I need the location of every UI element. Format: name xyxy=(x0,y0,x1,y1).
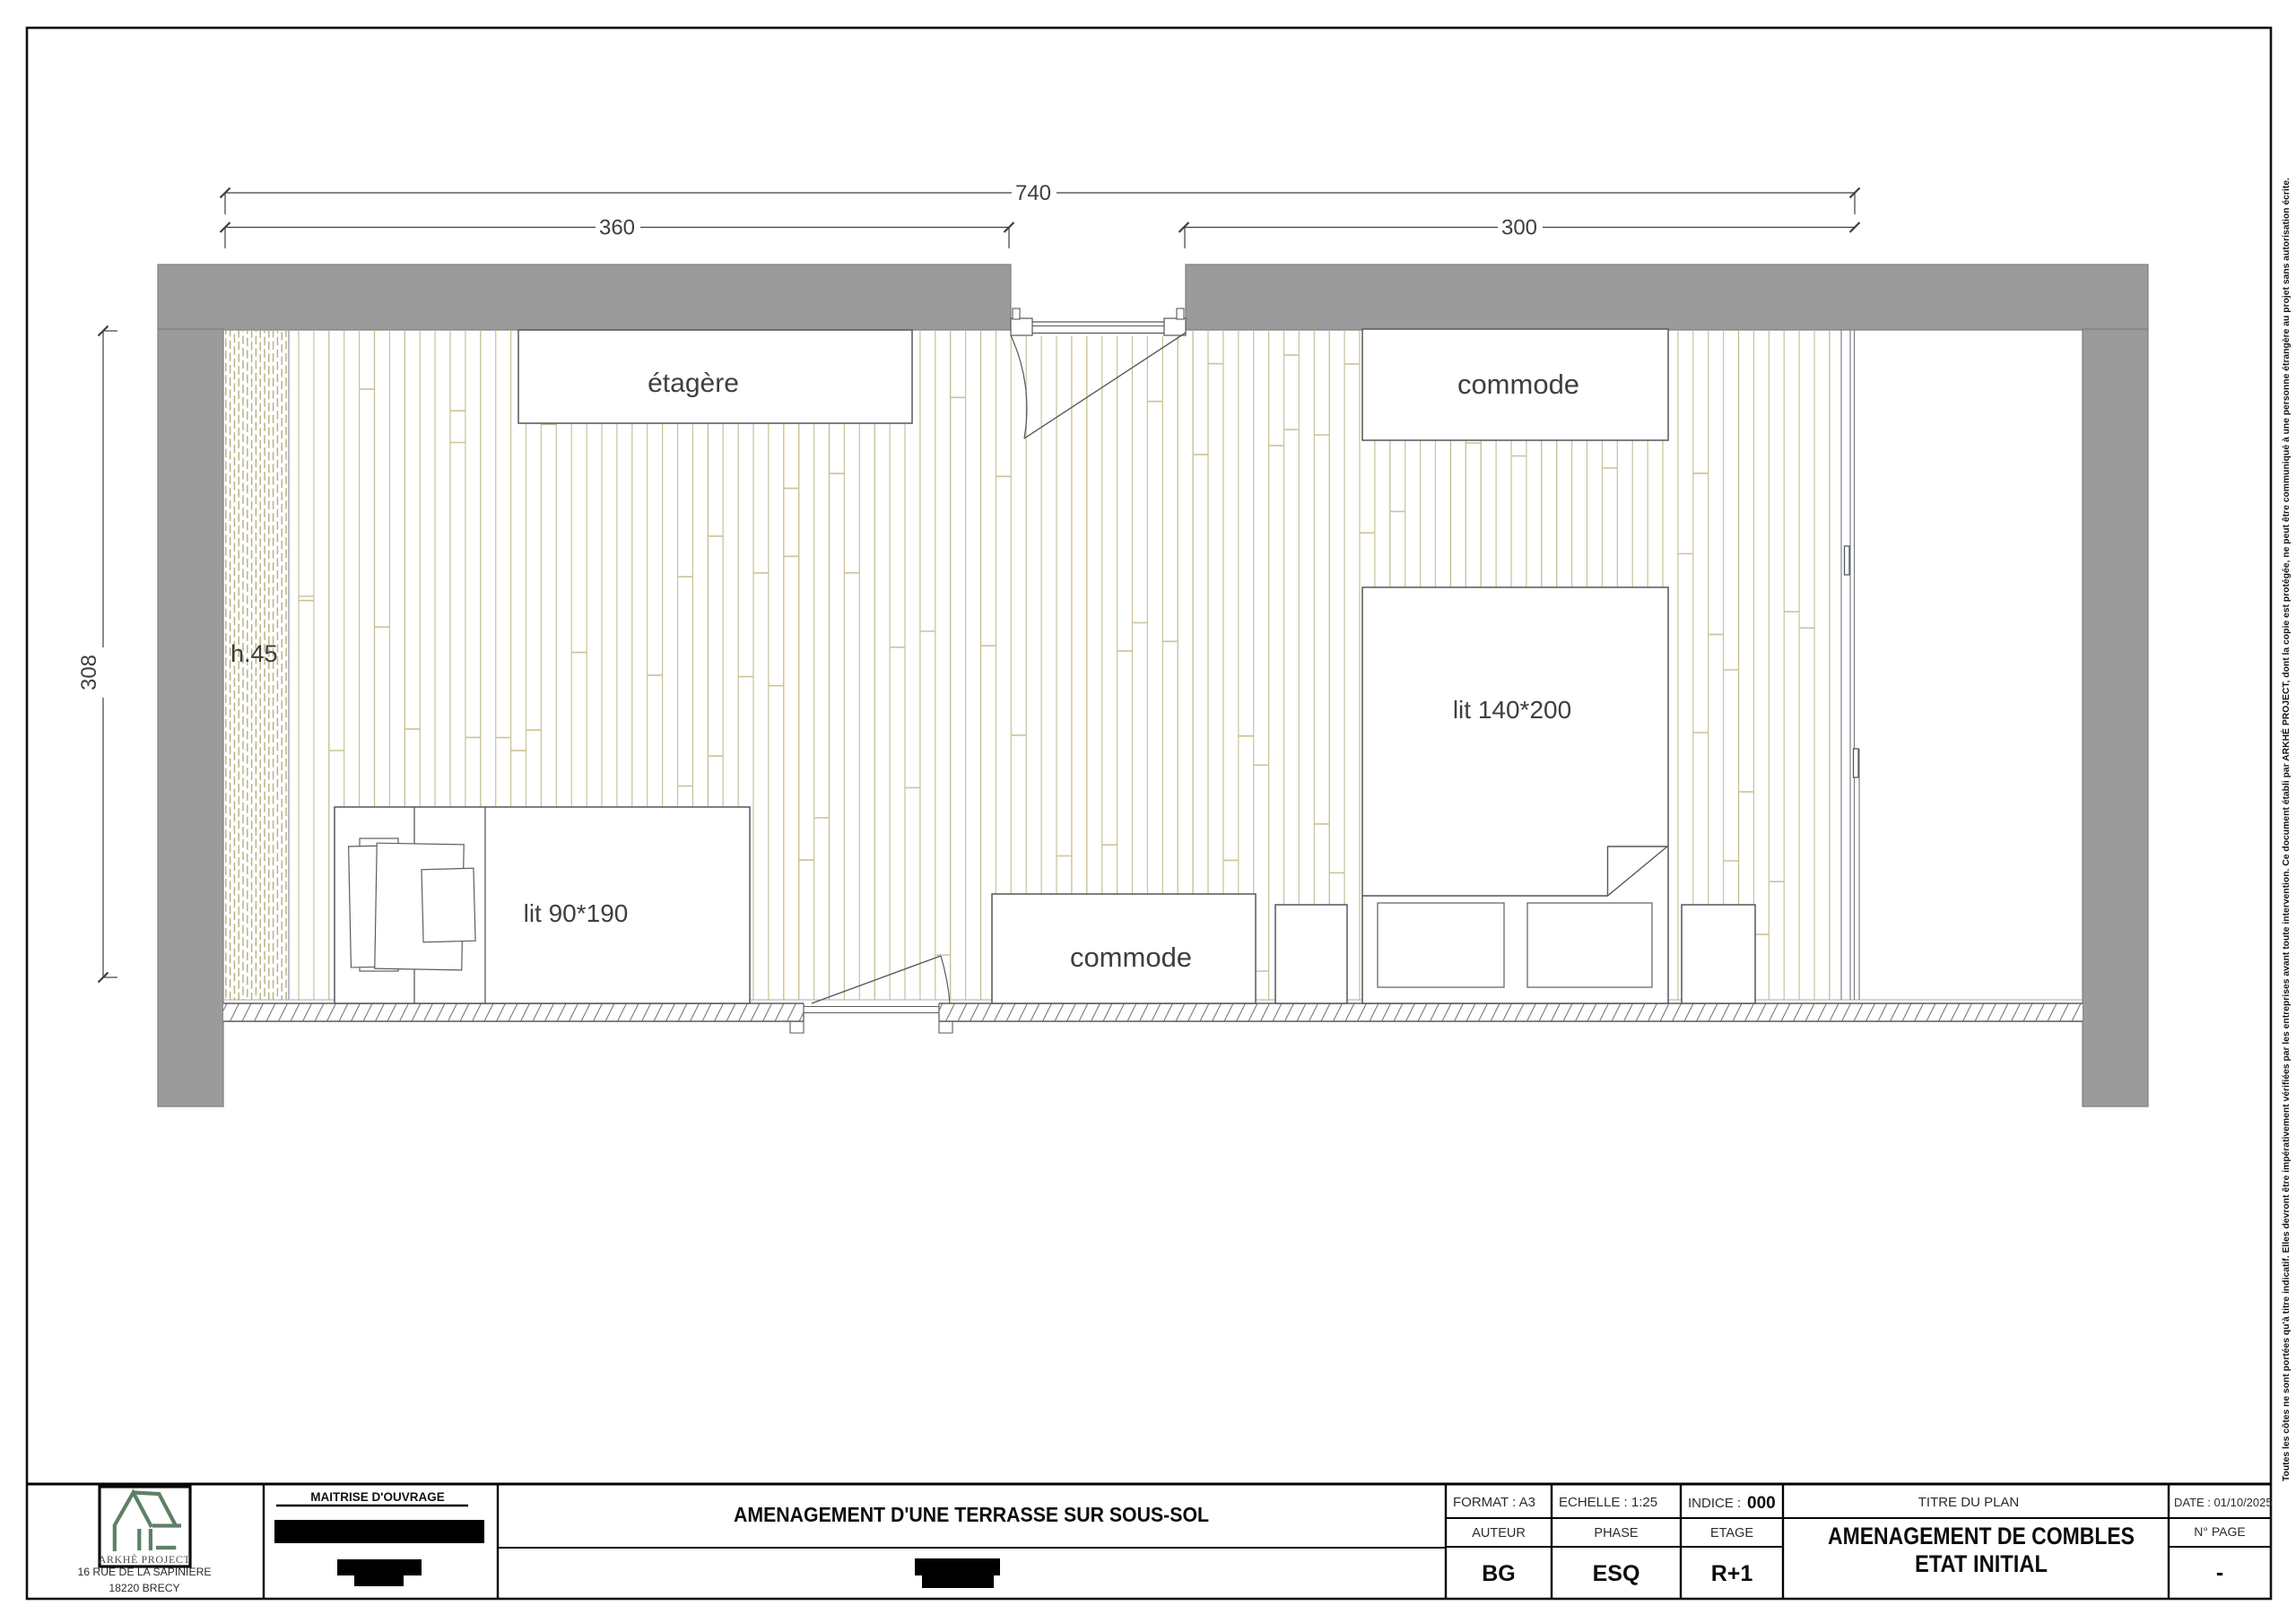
svg-text:AUTEUR: AUTEUR xyxy=(1472,1526,1526,1541)
svg-text:AMENAGEMENT D'UNE TERRASSE SUR: AMENAGEMENT D'UNE TERRASSE SUR SOUS-SOL xyxy=(734,1503,1209,1526)
svg-text:TITRE DU PLAN: TITRE DU PLAN xyxy=(1918,1495,2020,1510)
svg-text:étagère: étagère xyxy=(648,369,739,398)
svg-text:INDICE :: INDICE : xyxy=(1688,1496,1741,1511)
svg-text:Toutes les côtes ne sont porté: Toutes les côtes ne sont portées qu'à ti… xyxy=(2280,178,2292,1481)
svg-text:16 RUE DE LA SAPINIERE: 16 RUE DE LA SAPINIERE xyxy=(77,1566,211,1578)
svg-text:lit 90*190: lit 90*190 xyxy=(524,899,629,927)
svg-text:lit 140*200: lit 140*200 xyxy=(1453,696,1571,724)
svg-text:740: 740 xyxy=(1015,181,1051,205)
svg-text:h.45: h.45 xyxy=(230,640,278,667)
svg-text:300: 300 xyxy=(1501,216,1537,240)
svg-text:DATE : 01/10/2025: DATE : 01/10/2025 xyxy=(2174,1496,2273,1509)
svg-text:BG: BG xyxy=(1482,1561,1516,1586)
svg-text:N° PAGE: N° PAGE xyxy=(2194,1524,2245,1539)
svg-text:ETAGE: ETAGE xyxy=(1710,1526,1753,1541)
svg-text:ETAT INITIAL: ETAT INITIAL xyxy=(1915,1550,2048,1577)
svg-text:MAITRISE D'OUVRAGE: MAITRISE D'OUVRAGE xyxy=(310,1490,444,1504)
svg-text:commode: commode xyxy=(1457,369,1579,400)
svg-text:ARKHÈ PROJECT: ARKHÈ PROJECT xyxy=(99,1553,191,1566)
svg-text:360: 360 xyxy=(599,216,635,240)
svg-text:R+1: R+1 xyxy=(1711,1561,1753,1586)
svg-text:ECHELLE : 1:25: ECHELLE : 1:25 xyxy=(1559,1495,1657,1510)
svg-text:18220 BRECY: 18220 BRECY xyxy=(109,1582,179,1594)
svg-text:-: - xyxy=(2216,1560,2223,1585)
svg-text:308: 308 xyxy=(77,655,101,690)
svg-text:FORMAT : A3: FORMAT : A3 xyxy=(1453,1495,1535,1510)
svg-text:PHASE: PHASE xyxy=(1594,1526,1638,1541)
svg-text:commode: commode xyxy=(1070,942,1192,973)
svg-text:ESQ: ESQ xyxy=(1593,1561,1640,1586)
svg-text:AMENAGEMENT DE COMBLES: AMENAGEMENT DE COMBLES xyxy=(1828,1523,2135,1549)
svg-text:000: 000 xyxy=(1747,1494,1776,1513)
